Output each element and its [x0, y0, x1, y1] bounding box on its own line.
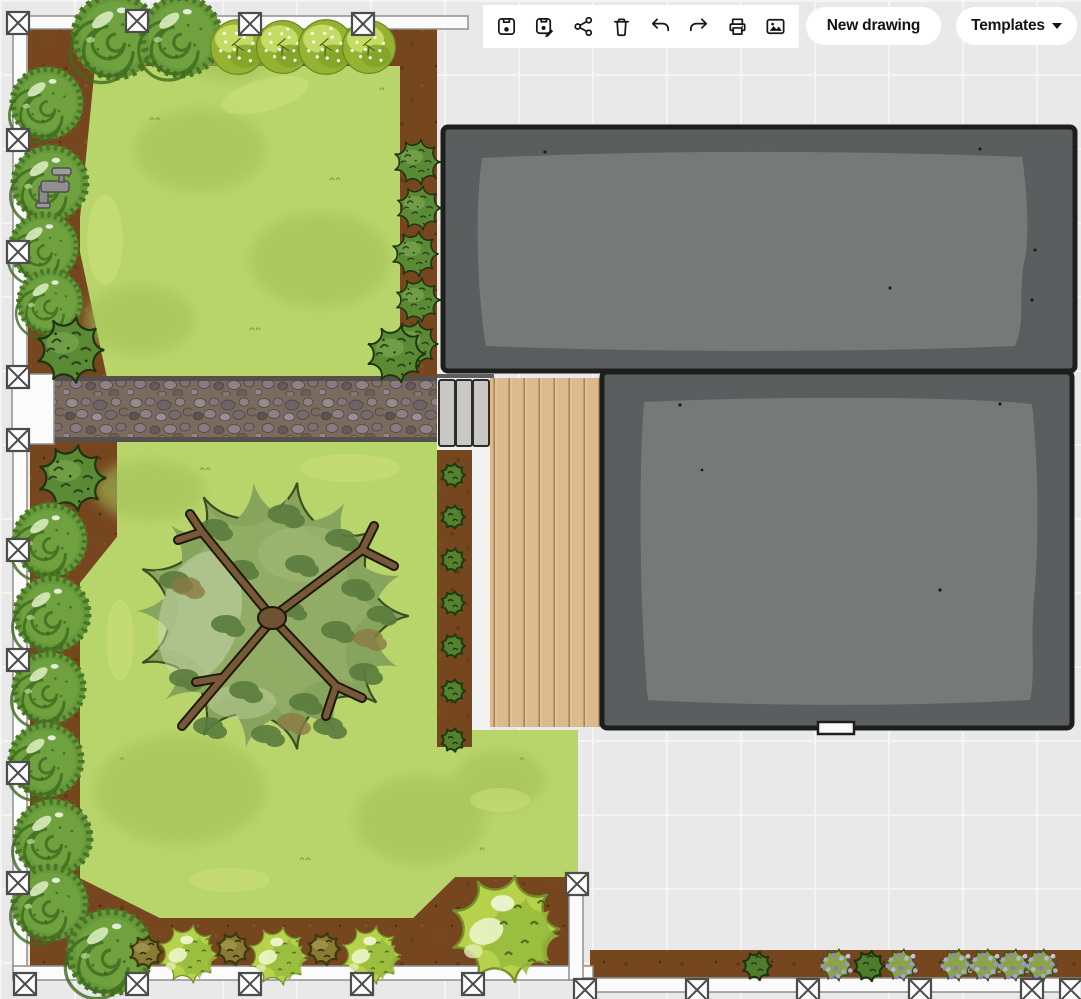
selection-handle[interactable] [566, 873, 588, 895]
selection-handle[interactable] [7, 12, 29, 34]
selection-handle[interactable] [797, 979, 819, 999]
undo-icon [649, 15, 672, 38]
export-image-button[interactable] [759, 10, 793, 44]
selection-handle[interactable] [1021, 979, 1043, 999]
templates-button[interactable]: Templates [956, 7, 1077, 45]
caret-down-icon [1052, 23, 1062, 29]
share-icon [572, 15, 595, 38]
print-button[interactable] [720, 10, 754, 44]
selection-handle[interactable] [7, 539, 29, 561]
redo-button[interactable] [682, 10, 716, 44]
selection-handle[interactable] [686, 979, 708, 999]
building-door-marker [818, 722, 854, 734]
selection-handle[interactable] [7, 241, 29, 263]
side-walkway[interactable] [472, 450, 490, 730]
save-button[interactable] [489, 10, 523, 44]
redo-icon [687, 15, 710, 38]
selection-handle[interactable] [909, 979, 931, 999]
print-icon [726, 15, 749, 38]
wooden-deck[interactable] [490, 378, 602, 727]
new-drawing-label: New drawing [827, 17, 920, 35]
selection-handle[interactable] [126, 973, 148, 995]
selection-handle[interactable] [7, 649, 29, 671]
share-button[interactable] [566, 10, 600, 44]
selection-handle[interactable] [14, 973, 36, 995]
export-image-icon [764, 15, 787, 38]
stone-path[interactable] [52, 376, 437, 442]
selection-handle[interactable] [1060, 979, 1081, 999]
selection-handle[interactable] [7, 762, 29, 784]
upper-lawn[interactable] [80, 42, 400, 378]
toolbar [483, 5, 799, 48]
selection-handle[interactable] [239, 973, 261, 995]
building-top[interactable] [443, 127, 1075, 371]
selection-handle[interactable] [352, 13, 374, 35]
undo-button[interactable] [643, 10, 677, 44]
save-as-icon [533, 15, 556, 38]
selection-handle[interactable] [7, 429, 29, 451]
delete-icon [610, 15, 633, 38]
garden-canvas[interactable] [0, 0, 1081, 999]
save-icon [495, 15, 518, 38]
selection-handle[interactable] [574, 979, 596, 999]
garden-planner-app: { "toolbar": { "new_drawing_label": "New… [0, 0, 1081, 999]
selection-handle[interactable] [351, 973, 373, 995]
fence-bottom-right-strip[interactable] [583, 978, 1081, 992]
selection-handle[interactable] [7, 129, 29, 151]
building-bottom[interactable] [602, 372, 1072, 734]
concrete-steps[interactable] [437, 374, 494, 450]
new-drawing-button[interactable]: New drawing [806, 7, 941, 45]
selection-handle[interactable] [126, 10, 148, 32]
save-as-button[interactable] [528, 10, 562, 44]
selection-handle[interactable] [239, 13, 261, 35]
templates-label: Templates [971, 17, 1045, 35]
delete-button[interactable] [605, 10, 639, 44]
selection-handle[interactable] [7, 872, 29, 894]
selection-handle[interactable] [462, 973, 484, 995]
selection-handle[interactable] [7, 366, 29, 388]
